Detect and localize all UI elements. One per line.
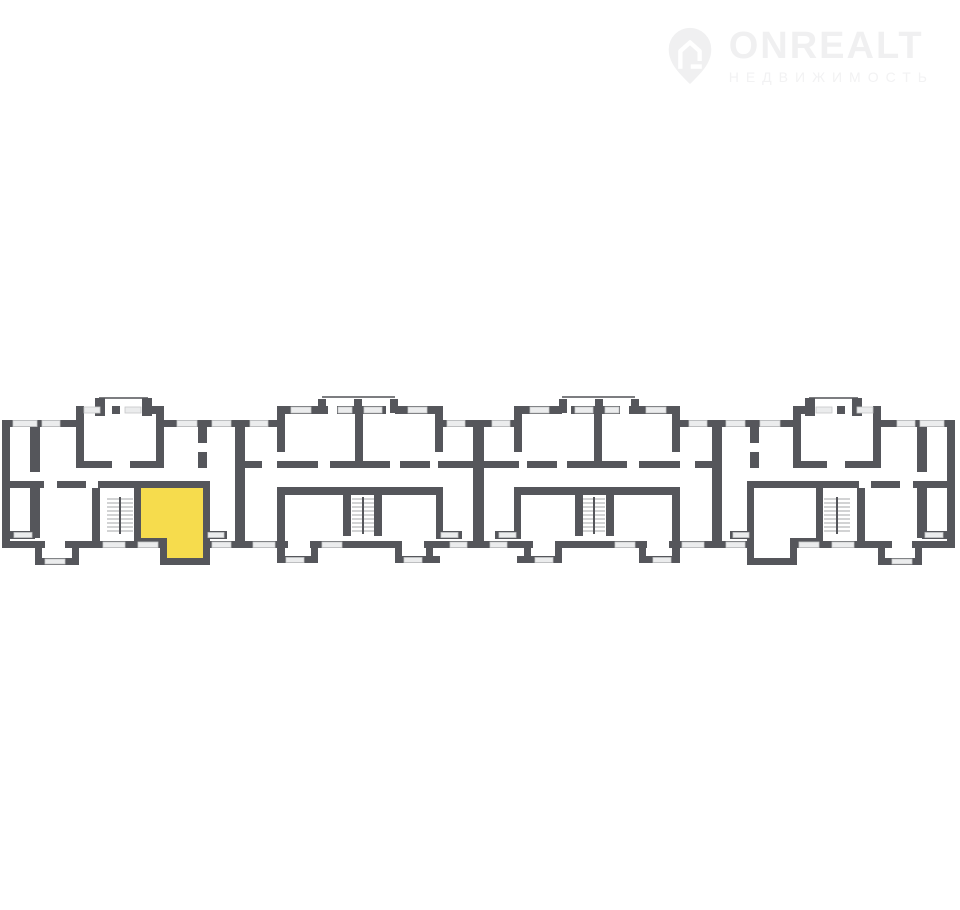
building-half [2,397,479,565]
porch-1 [35,545,79,565]
page: ONREALT НЕДВИЖИМОСТЬ [0,0,960,910]
floor-plan [0,0,960,910]
staircase-1 [107,497,133,534]
building-right-half [478,397,955,565]
section-2 [245,397,479,563]
highlighted-apartment[interactable] [138,486,208,560]
staircase-2 [352,497,374,534]
balcony-1 [95,398,152,416]
section-1-walls [2,406,288,565]
section-2-walls [245,406,479,563]
